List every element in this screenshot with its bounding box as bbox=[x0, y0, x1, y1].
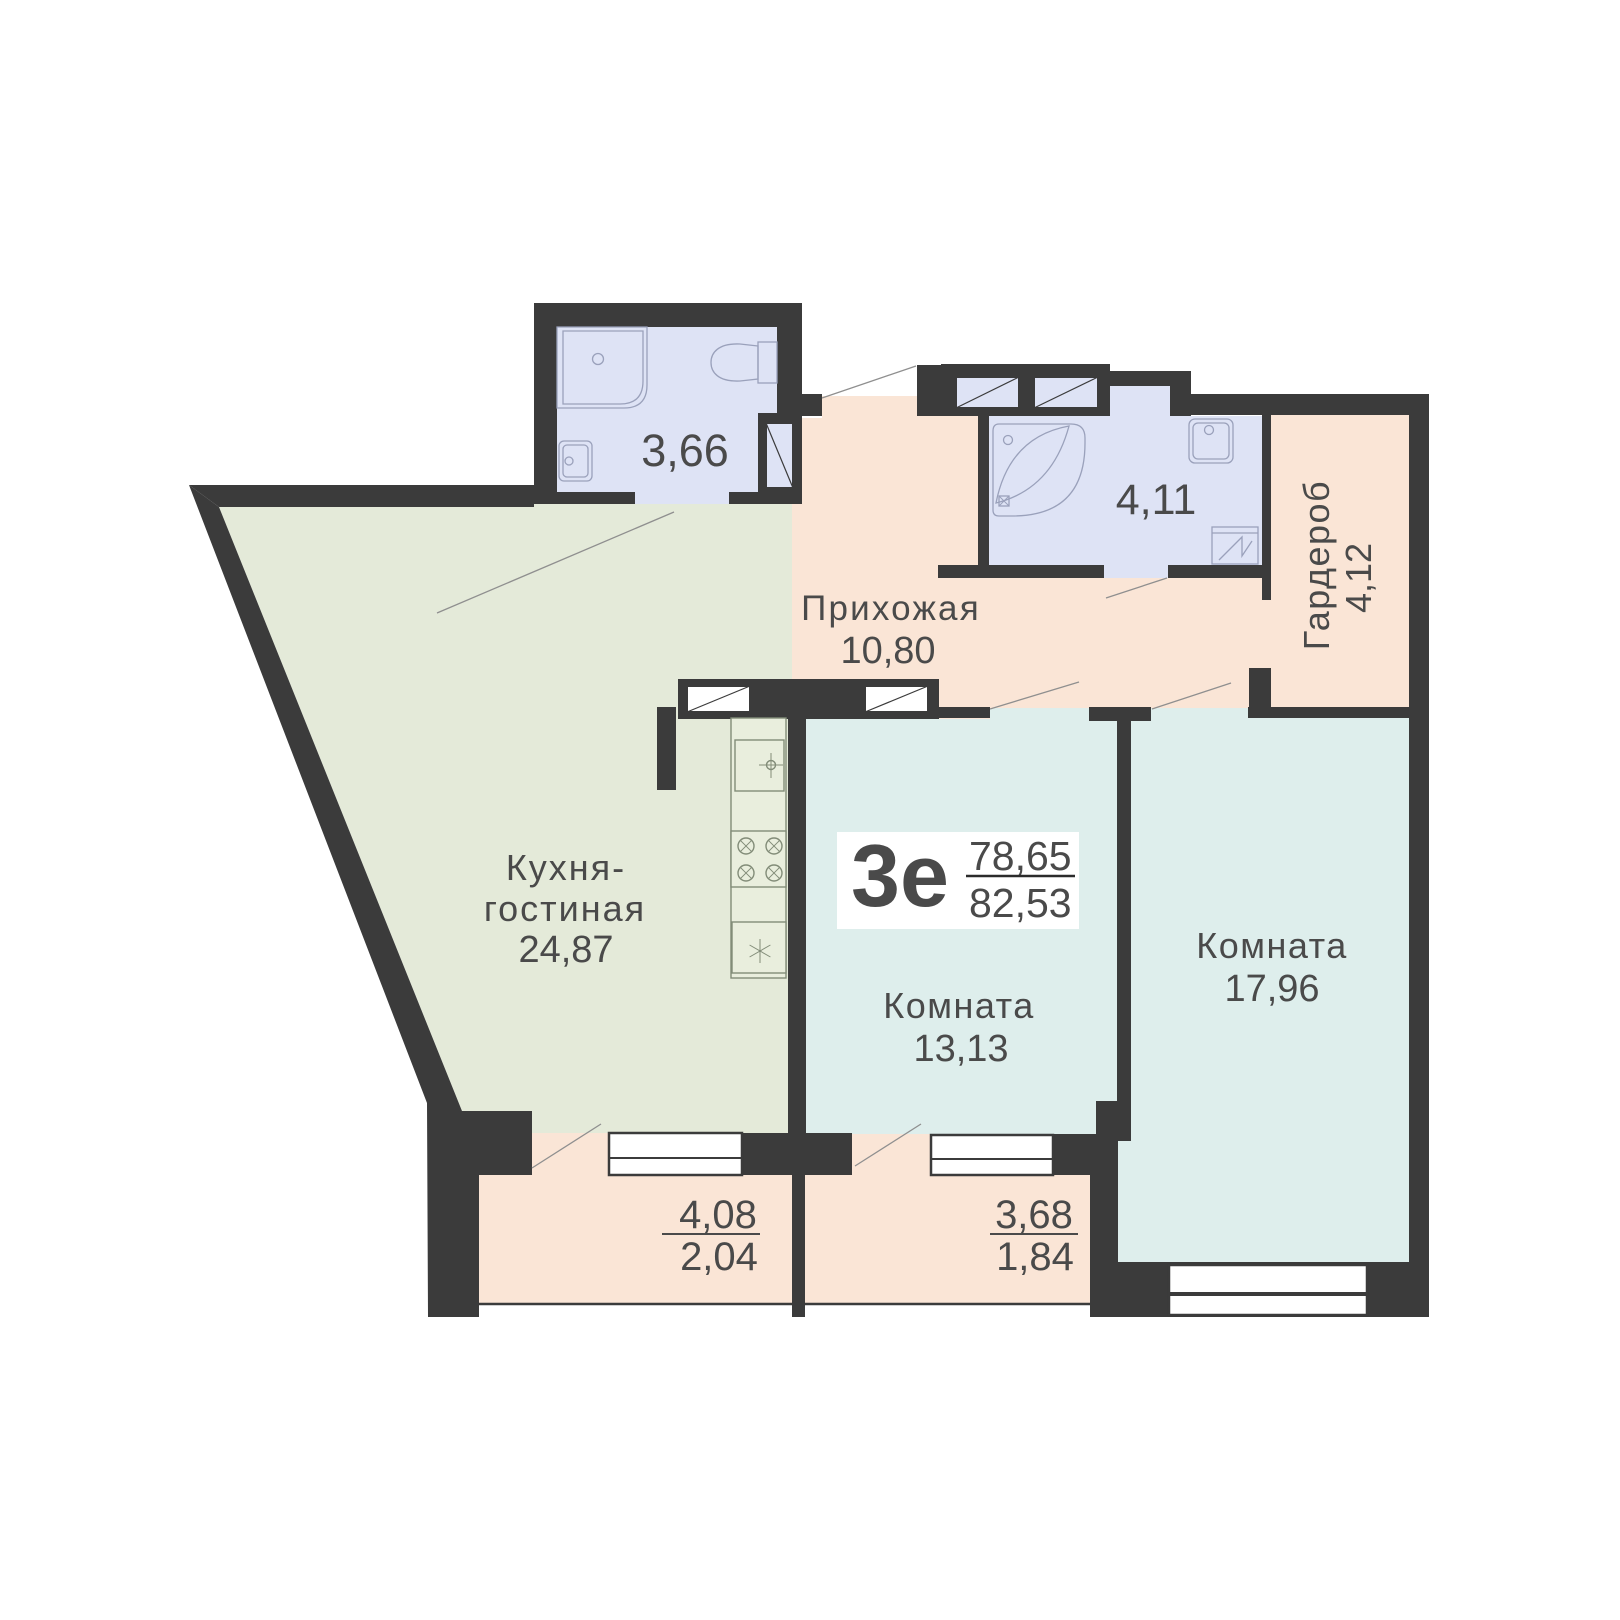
svg-text:2,04: 2,04 bbox=[680, 1235, 758, 1279]
svg-text:3,68: 3,68 bbox=[995, 1193, 1073, 1237]
svg-text:82,53: 82,53 bbox=[969, 880, 1072, 926]
svg-text:24,87: 24,87 bbox=[518, 929, 613, 971]
svg-text:1,84: 1,84 bbox=[996, 1235, 1074, 1279]
svg-text:Комната: Комната bbox=[1196, 925, 1347, 966]
svg-text:Кухня-: Кухня- bbox=[506, 847, 626, 888]
svg-text:Прихожая: Прихожая bbox=[801, 589, 981, 628]
svg-text:3,66: 3,66 bbox=[641, 425, 729, 476]
svg-text:3е: 3е bbox=[851, 826, 949, 925]
svg-text:10,80: 10,80 bbox=[840, 630, 935, 672]
svg-text:17,96: 17,96 bbox=[1224, 968, 1319, 1010]
svg-text:13,13: 13,13 bbox=[913, 1028, 1008, 1070]
svg-text:4,12: 4,12 bbox=[1338, 543, 1379, 613]
svg-text:Комната: Комната bbox=[883, 985, 1034, 1026]
svg-text:4,11: 4,11 bbox=[1116, 476, 1197, 524]
svg-text:4,08: 4,08 bbox=[679, 1193, 757, 1237]
svg-text:78,65: 78,65 bbox=[969, 833, 1072, 879]
svg-text:гостиная: гостиная bbox=[484, 888, 646, 929]
svg-text:Гардероб: Гардероб bbox=[1296, 480, 1337, 650]
